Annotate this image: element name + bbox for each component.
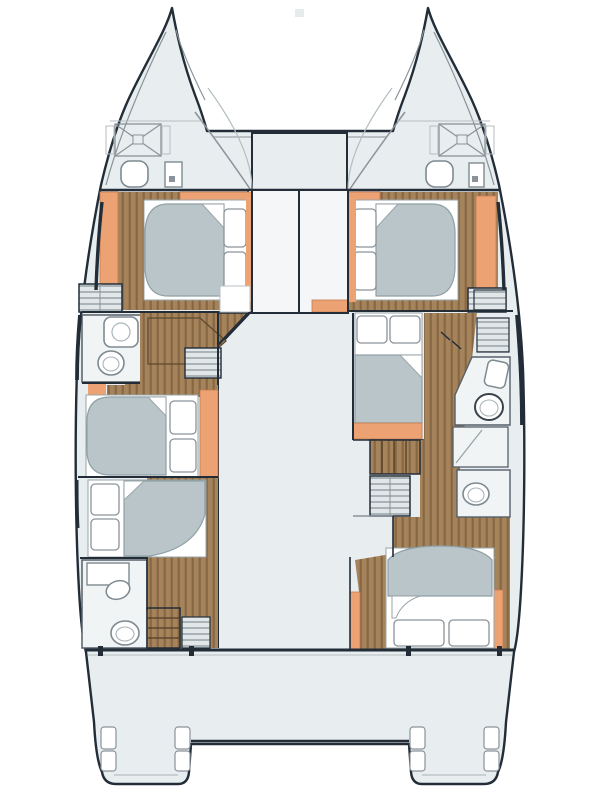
floorplan-svg — [0, 0, 600, 800]
cabinet-knob — [472, 176, 478, 182]
transom-step — [484, 727, 499, 749]
deck-cleat — [189, 646, 194, 656]
transom-step — [175, 751, 190, 771]
transom-step — [410, 751, 425, 771]
pillow — [91, 484, 119, 515]
orange-headboard — [349, 198, 356, 302]
sink — [484, 359, 510, 389]
orange-trim — [350, 592, 360, 650]
louvered-locker — [182, 617, 210, 648]
orange-trim — [312, 300, 348, 312]
pillow — [394, 620, 444, 646]
cabinet-knob — [169, 176, 175, 182]
sink — [104, 317, 138, 347]
bed-duvet — [145, 204, 224, 296]
bed-duvet — [87, 397, 166, 475]
pillow — [354, 209, 376, 247]
pillow — [224, 209, 246, 247]
catamaran-floorplan — [0, 0, 600, 800]
stbd-aft-cabin — [350, 546, 510, 650]
foredeck-locker — [252, 133, 347, 190]
pillow — [170, 401, 196, 434]
stairs — [370, 440, 420, 474]
louvered-locker — [474, 290, 506, 310]
transom-step — [175, 727, 190, 749]
transom-step — [101, 727, 116, 749]
deck-cleat — [98, 646, 103, 656]
louvered-locker — [477, 318, 509, 352]
pillow — [449, 620, 489, 646]
bed-duvet — [388, 546, 492, 596]
bed-duvet — [376, 204, 455, 296]
transom-step — [101, 751, 116, 771]
pillow — [390, 316, 420, 343]
louvered-locker — [185, 348, 221, 378]
pillow — [357, 316, 387, 343]
toilet — [426, 161, 453, 187]
mast-mark — [295, 9, 304, 17]
orange-footboard — [353, 423, 422, 439]
deck-cleat — [406, 646, 411, 656]
pillow — [91, 519, 119, 550]
hatch-center — [457, 135, 467, 144]
transom-step — [410, 727, 425, 749]
hull-glazing-band — [77, 480, 78, 528]
transom-step — [484, 751, 499, 771]
center-forward-block — [248, 190, 348, 313]
toilet — [121, 161, 148, 187]
pillow — [170, 439, 196, 472]
pillow — [224, 252, 246, 290]
corridor-pocket — [220, 286, 250, 312]
cabinet — [469, 163, 484, 187]
pillow — [354, 252, 376, 290]
shower — [453, 427, 508, 467]
orange-trim — [476, 196, 496, 290]
cabinet — [165, 162, 182, 187]
orange-headboard — [200, 390, 218, 478]
deck-cleat — [497, 646, 502, 656]
hatch-center — [133, 135, 143, 144]
